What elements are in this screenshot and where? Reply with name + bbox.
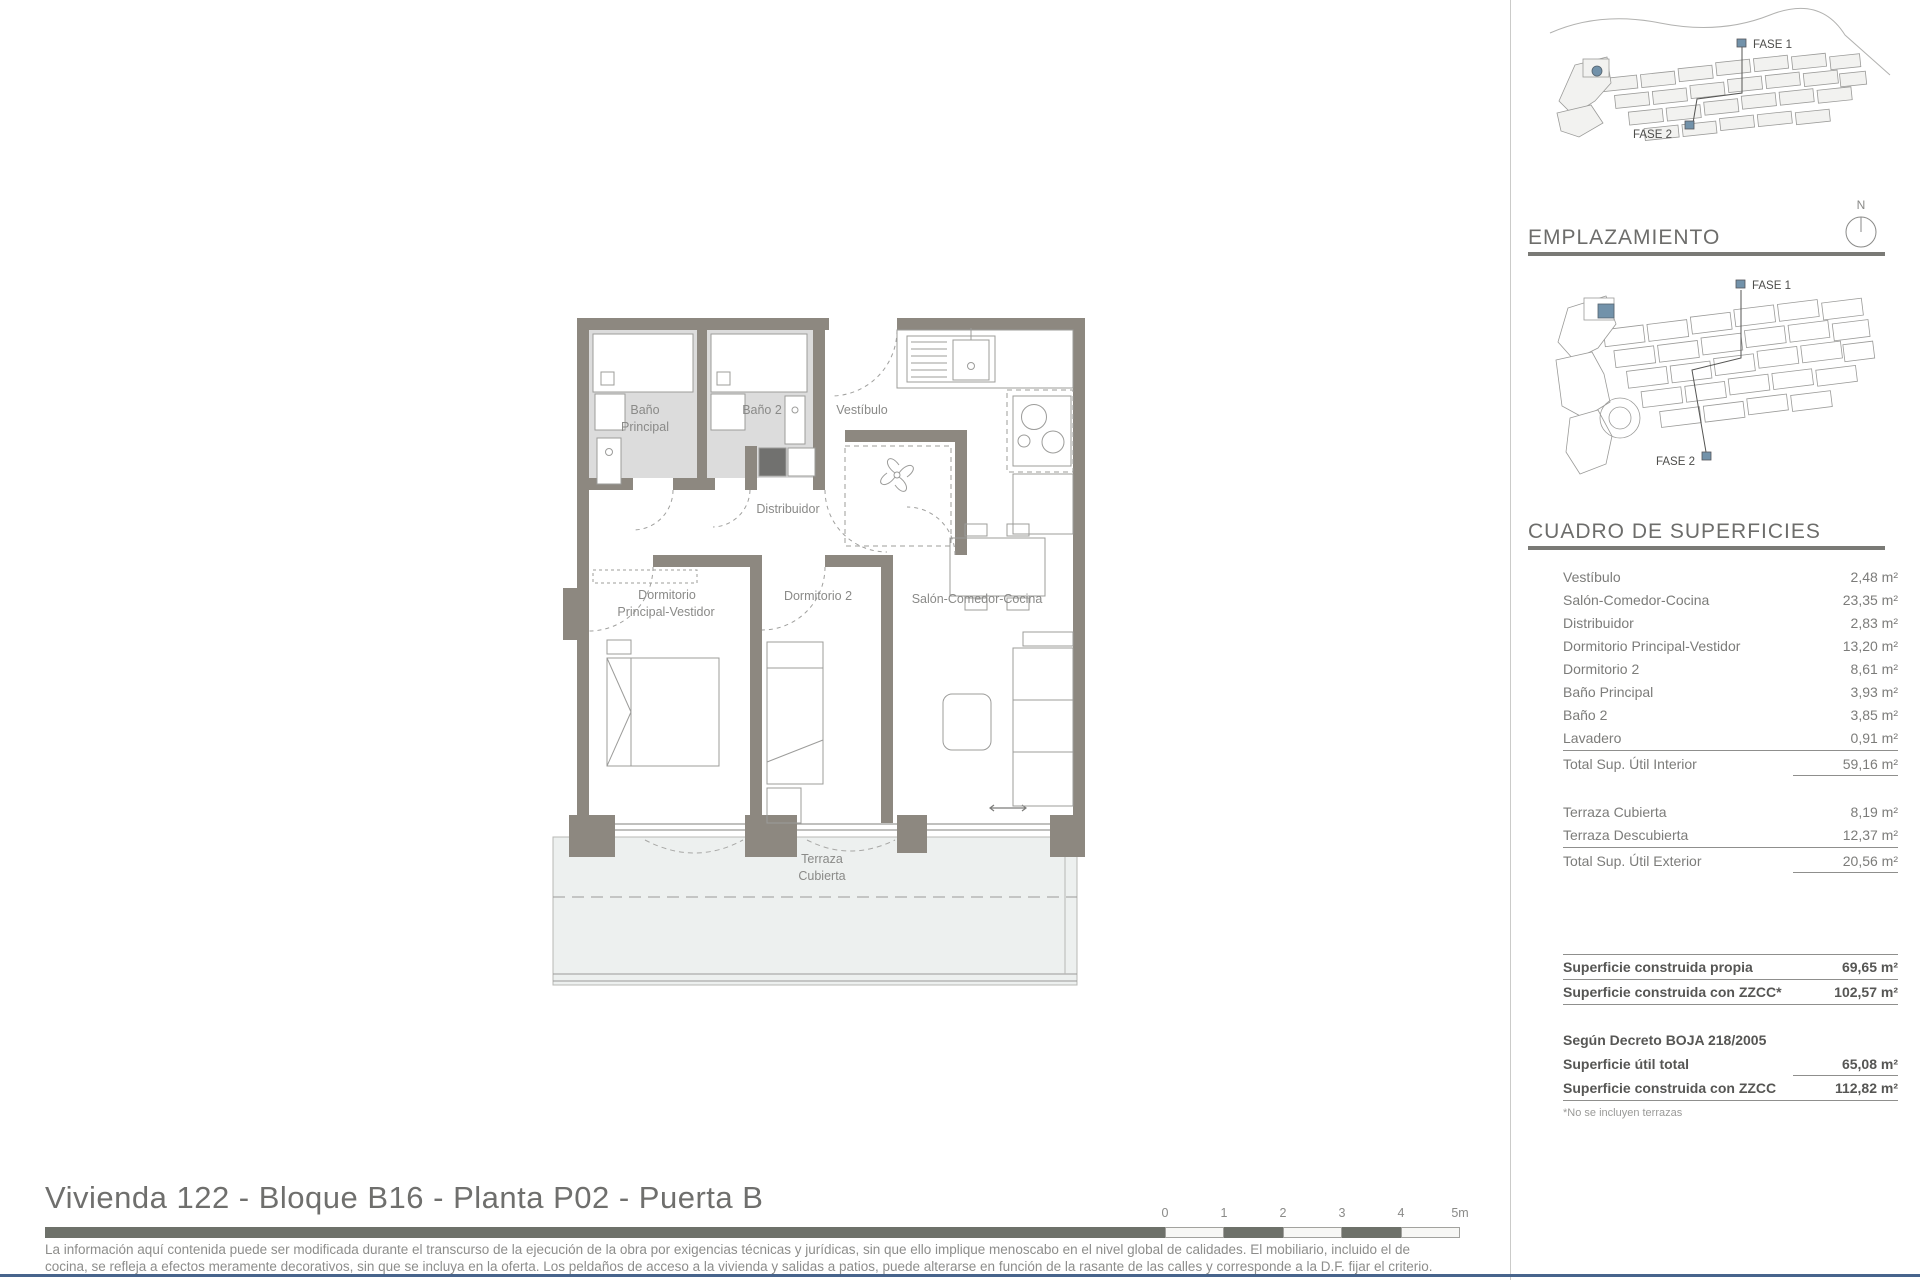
row-value: 3,85 m² — [1851, 704, 1898, 727]
scale-segment — [1401, 1227, 1460, 1238]
emplazamiento-underline — [1528, 252, 1885, 256]
label-vestibulo: Vestíbulo — [836, 403, 887, 417]
row-value: 13,20 m² — [1843, 635, 1898, 658]
table-footnote: *No se incluyen terrazas — [1563, 1107, 1898, 1119]
built-row: Superficie construida propia69,65 m² — [1563, 955, 1898, 980]
label-terraza-2: Cubierta — [798, 869, 845, 883]
row-value: 65,08 m² — [1793, 1053, 1898, 1076]
decree-heading: Según Decreto BOJA 218/2005 — [1563, 1029, 1898, 1052]
fase2-label-detail: FASE 2 — [1656, 456, 1695, 468]
sheet-title: Vivienda 122 - Bloque B16 - Planta P02 -… — [45, 1180, 1165, 1216]
bottom-rule — [0, 1274, 1920, 1277]
scale-tick-4: 4 — [1381, 1206, 1421, 1220]
row-label: Salón-Comedor-Cocina — [1563, 589, 1709, 612]
row-label: Superficie construida propia — [1563, 955, 1753, 979]
row-value: 12,37 m² — [1843, 824, 1898, 847]
row-label: Superficie construida con ZZCC* — [1563, 980, 1782, 1004]
row-value: 2,83 m² — [1851, 612, 1898, 635]
row-label: Superficie útil total — [1563, 1052, 1689, 1076]
table-row: Distribuidor2,83 m² — [1563, 612, 1898, 635]
row-label: Lavadero — [1563, 727, 1621, 750]
row-value: 102,57 m² — [1834, 980, 1898, 1004]
label-dormitorio-principal: Dormitorio — [638, 588, 696, 602]
fase1-label: FASE 1 — [1753, 39, 1792, 51]
row-label: Total Sup. Útil Exterior — [1563, 848, 1702, 874]
label-bano-principal-2: Principal — [621, 420, 669, 434]
table-row: Baño 23,85 m² — [1563, 704, 1898, 727]
row-label: Dormitorio Principal-Vestidor — [1563, 635, 1740, 658]
decree-section: Según Decreto BOJA 218/2005 Superficie ú… — [1563, 1029, 1898, 1119]
row-label: Terraza Descubierta — [1563, 824, 1688, 847]
row-label: Dormitorio 2 — [1563, 658, 1639, 681]
scale-bar — [1165, 1227, 1460, 1238]
title-rule — [45, 1227, 1165, 1238]
site-plan-detail: FASE 1 FASE 2 — [1540, 268, 1900, 486]
scale-tick-0: 0 — [1145, 1206, 1185, 1220]
label-terraza: Terraza — [801, 852, 843, 866]
label-dormitorio2: Dormitorio 2 — [784, 589, 852, 603]
fase2-label: FASE 2 — [1633, 129, 1672, 141]
table-row: Salón-Comedor-Cocina23,35 m² — [1563, 589, 1898, 612]
row-label: Distribuidor — [1563, 612, 1634, 635]
table-row: Dormitorio 28,61 m² — [1563, 658, 1898, 681]
row-value: 8,61 m² — [1851, 658, 1898, 681]
scale-tick-3: 3 — [1322, 1206, 1362, 1220]
site-plan-aerial: FASE 1 FASE 2 — [1545, 5, 1895, 177]
table-row: Terraza Descubierta12,37 m² — [1563, 824, 1898, 847]
label-salon: Salón-Comedor-Cocina — [912, 592, 1043, 606]
floor-plan: Baño Principal Baño 2 Vestíbulo Distribu… — [545, 310, 1110, 1015]
scale-tick-1: 1 — [1204, 1206, 1244, 1220]
decree-row: Superficie construida con ZZCC112,82 m² — [1563, 1076, 1898, 1101]
label-bano2: Baño 2 — [742, 403, 782, 417]
floor-plan-drawing: Baño Principal Baño 2 Vestíbulo Distribu… — [545, 310, 1110, 1015]
location-marker-detail — [1598, 304, 1614, 318]
row-value: 23,35 m² — [1843, 589, 1898, 612]
built-section: Superficie construida propia69,65 m² Sup… — [1563, 954, 1898, 1005]
built-row: Superficie construida con ZZCC*102,57 m² — [1563, 980, 1898, 1005]
table-row: Baño Principal3,93 m² — [1563, 681, 1898, 704]
row-label: Vestíbulo — [1563, 566, 1621, 589]
cuadro-heading: CUADRO DE SUPERFICIES — [1528, 520, 1821, 544]
row-label: Baño Principal — [1563, 681, 1653, 704]
fase1-marker — [1737, 39, 1746, 47]
row-value: 2,48 m² — [1851, 566, 1898, 589]
decree-row: Superficie útil total65,08 m² — [1563, 1052, 1898, 1076]
scale-segment — [1224, 1227, 1283, 1238]
row-value: 20,56 m² — [1793, 850, 1898, 873]
disclaimer-line2: cocina, se refleja a efectos meramente d… — [45, 1258, 1500, 1275]
fan-icon — [881, 459, 914, 492]
row-value: 112,82 m² — [1835, 1076, 1898, 1100]
scale-segment — [1283, 1227, 1342, 1238]
surfaces-table: Vestíbulo2,48 m² Salón-Comedor-Cocina23,… — [1563, 560, 1898, 1119]
row-label: Terraza Cubierta — [1563, 801, 1667, 824]
scale-tick-5: 5m — [1440, 1206, 1480, 1220]
table-row: Dormitorio Principal-Vestidor13,20 m² — [1563, 635, 1898, 658]
fase2-marker — [1685, 121, 1694, 129]
fase1-marker-detail — [1736, 280, 1745, 288]
north-compass: N — [1838, 196, 1884, 257]
row-value: 0,91 m² — [1851, 727, 1898, 750]
table-row: Lavadero0,91 m² — [1563, 727, 1898, 750]
row-value: 59,16 m² — [1793, 753, 1898, 776]
washer-icon — [759, 448, 786, 476]
fase1-label-detail: FASE 1 — [1752, 280, 1791, 292]
terrace-windows — [615, 824, 1050, 830]
building-cluster-detail — [1556, 293, 1880, 474]
label-distribuidor: Distribuidor — [756, 502, 819, 516]
scale-tick-2: 2 — [1263, 1206, 1303, 1220]
row-value: 69,65 m² — [1842, 955, 1898, 979]
north-label: N — [1857, 198, 1866, 212]
label-dormitorio-principal-2: Principal-Vestidor — [617, 605, 714, 619]
row-label: Total Sup. Útil Interior — [1563, 751, 1697, 777]
label-bano-principal: Baño — [630, 403, 659, 417]
row-value: 3,93 m² — [1851, 681, 1898, 704]
scale-segment — [1165, 1227, 1224, 1238]
building-cluster — [1557, 47, 1870, 144]
interior-total-row: Total Sup. Útil Interior59,16 m² — [1563, 750, 1898, 777]
table-row: Terraza Cubierta8,19 m² — [1563, 801, 1898, 824]
fase2-marker-detail — [1702, 452, 1711, 460]
emplazamiento-heading: EMPLAZAMIENTO — [1528, 226, 1720, 250]
exterior-total-row: Total Sup. Útil Exterior20,56 m² — [1563, 847, 1898, 874]
row-label: Superficie construida con ZZCC — [1563, 1076, 1776, 1100]
row-value: 8,19 m² — [1851, 801, 1898, 824]
row-label: Baño 2 — [1563, 704, 1607, 727]
location-marker — [1592, 66, 1602, 76]
sidebar-divider — [1510, 0, 1511, 1280]
scale-segment — [1342, 1227, 1401, 1238]
disclaimer-line1: La información aquí contenida puede ser … — [45, 1241, 1500, 1258]
cuadro-underline — [1528, 546, 1885, 550]
table-row: Vestíbulo2,48 m² — [1563, 566, 1898, 589]
